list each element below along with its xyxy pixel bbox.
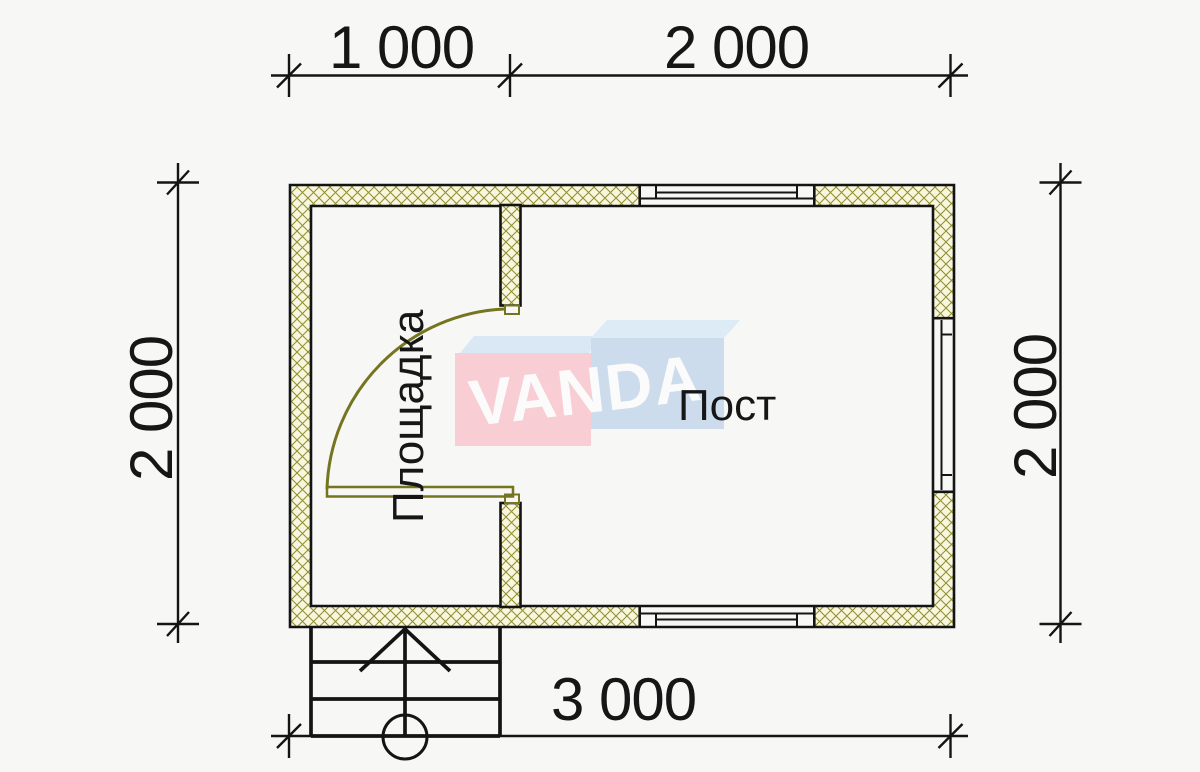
svg-text:Площадка: Площадка xyxy=(384,309,433,523)
svg-text:2 000: 2 000 xyxy=(1002,334,1069,479)
svg-text:2 000: 2 000 xyxy=(118,336,185,481)
svg-text:1 000: 1 000 xyxy=(329,14,474,81)
svg-text:Пост: Пост xyxy=(678,381,776,430)
svg-text:3 000: 3 000 xyxy=(551,666,696,733)
svg-text:2 000: 2 000 xyxy=(664,14,809,81)
